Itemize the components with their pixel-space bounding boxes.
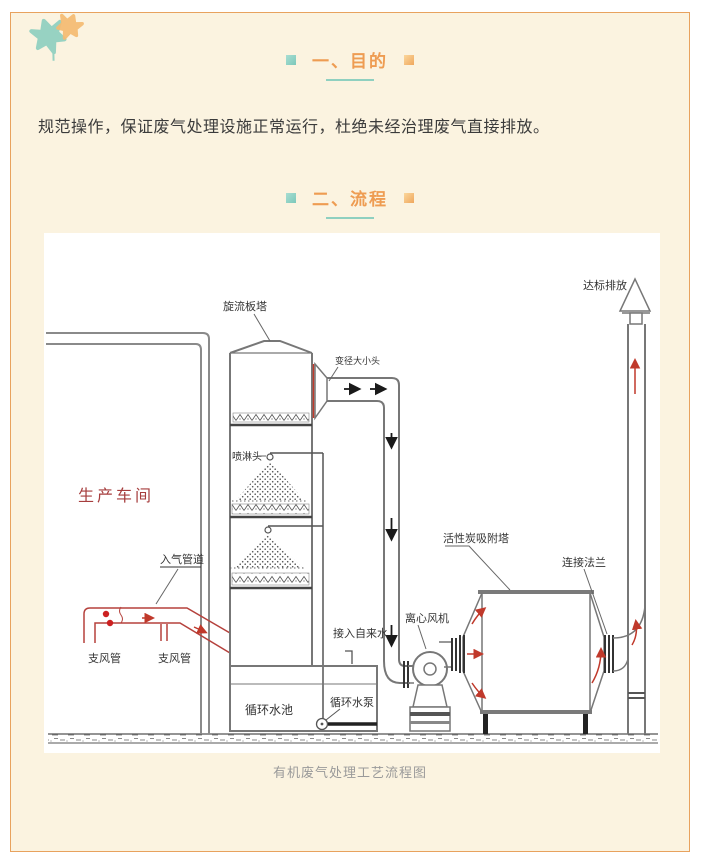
label-cyclone-tower: 旋流板塔 bbox=[223, 299, 267, 313]
fan bbox=[404, 638, 456, 731]
label-branch-duct-left: 支风管 bbox=[88, 651, 121, 665]
teal-square-icon bbox=[286, 55, 296, 65]
purpose-paragraph: 规范操作，保证废气处理设施正常运行，杜绝未经治理废气直接排放。 bbox=[38, 117, 661, 139]
content-card: 一、目的 规范操作，保证废气处理设施正常运行，杜绝未经治理废气直接排放。 二、流… bbox=[10, 12, 690, 852]
carbon-tower bbox=[460, 590, 613, 734]
label-pool: 循环水池 bbox=[245, 703, 293, 717]
label-fan: 离心风机 bbox=[405, 611, 449, 625]
inlet-duct-label-group: 入气管道 bbox=[156, 552, 204, 604]
label-flange: 连接法兰 bbox=[562, 555, 606, 569]
stack bbox=[613, 279, 650, 734]
label-pump: 循环水泵 bbox=[330, 696, 374, 709]
spray-label-group: 喷淋头 bbox=[232, 450, 266, 463]
leaf-decoration-icon bbox=[27, 11, 89, 63]
orange-square-icon bbox=[404, 55, 414, 65]
tap-water: 接入自来水 bbox=[333, 627, 388, 664]
process-heading: 二、流程 bbox=[312, 185, 388, 210]
heading-underline bbox=[326, 79, 374, 81]
carbon-tower-label-group: 活性炭吸附塔 bbox=[443, 531, 510, 590]
heading-underline bbox=[326, 217, 374, 219]
teal-square-icon bbox=[286, 193, 296, 203]
cyclone-tower bbox=[230, 341, 312, 666]
section-heading-process: 二、流程 bbox=[11, 185, 689, 219]
label-carbon-tower: 活性炭吸附塔 bbox=[443, 531, 509, 545]
label-workshop: 生产车间 bbox=[78, 487, 154, 505]
label-discharge: 达标排放 bbox=[583, 278, 627, 292]
workshop bbox=[46, 333, 209, 734]
label-reducer: 变径大小头 bbox=[335, 355, 380, 366]
spray-system bbox=[230, 453, 323, 720]
label-inlet-duct: 入气管道 bbox=[160, 552, 204, 566]
section-heading-purpose: 一、目的 bbox=[11, 47, 689, 81]
ground bbox=[48, 734, 658, 743]
process-flow-diagram: 生产车间 支风管 支风管 入气管道 bbox=[44, 233, 660, 753]
tower-label-group: 旋流板塔 bbox=[223, 299, 270, 341]
label-branch-duct-right: 支风管 bbox=[158, 651, 191, 665]
label-tap-water: 接入自来水 bbox=[333, 627, 388, 640]
label-spray-head: 喷淋头 bbox=[232, 450, 262, 463]
fan-label-group: 离心风机 bbox=[405, 611, 449, 649]
purpose-heading: 一、目的 bbox=[312, 47, 388, 72]
pump: 循环水泵 bbox=[317, 696, 378, 730]
diagram-caption: 有机废气处理工艺流程图 bbox=[11, 762, 689, 781]
orange-square-icon bbox=[404, 193, 414, 203]
